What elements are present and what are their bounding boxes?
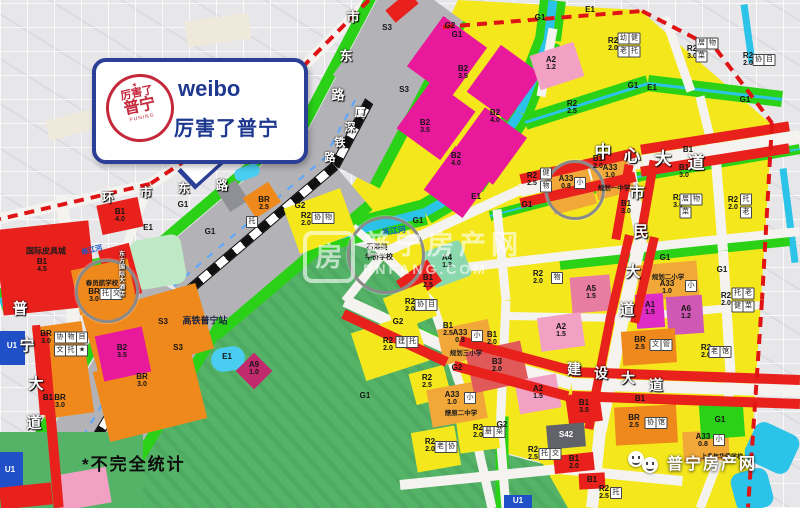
facility-icon-box-cluster: 协目 — [753, 54, 774, 66]
zone-label: B1 — [587, 476, 597, 484]
zone-label: A51.5 — [586, 285, 596, 301]
zone-label: G1 — [628, 82, 639, 90]
facility-icon: 目 — [764, 54, 776, 66]
facility-icon-box-cluster: 协物目文托★ — [54, 332, 86, 357]
facility-icon: 托 — [246, 216, 258, 228]
zone-label: E1 — [222, 353, 232, 361]
zone-label: S3 — [382, 24, 392, 32]
facility-icon: 老 — [740, 207, 752, 219]
zone-label: A331.0 — [445, 391, 460, 407]
facility-icon: 菜 — [696, 51, 708, 63]
zone-label: A91.0 — [249, 361, 259, 377]
zone-label: B1 — [43, 394, 53, 402]
text-label: 规划三小学 — [450, 347, 483, 357]
zone-label: G2 — [295, 202, 306, 210]
facility-icon-box-cluster: 协馆 — [645, 417, 666, 429]
zone-label: R22.5 — [567, 100, 577, 116]
facility-icon-box-cluster: 幼健老托 — [618, 33, 639, 58]
facility-icon: 小 — [464, 392, 476, 404]
text-label: 市 — [140, 184, 152, 201]
facility-icon: 交 — [550, 448, 562, 460]
facility-icon-box-cluster: 协目 — [415, 299, 436, 311]
zone-label: G1 — [413, 217, 424, 225]
facility-icon: 老 — [743, 288, 755, 300]
puning-stamp-icon: ★ 厉害了 普宁 PUNING — [100, 68, 181, 149]
zone-label: A11.5 — [645, 301, 655, 317]
text-label: 建 — [567, 359, 581, 379]
facility-icon: 健 — [629, 33, 641, 45]
text-label: 东方国际大酒店 — [117, 252, 127, 298]
facility-icon-box-cluster: 建托 — [396, 336, 417, 348]
zone-label: G1 — [717, 266, 728, 274]
zone-label: A41.3 — [442, 254, 452, 270]
facility-icon: 托 — [740, 194, 752, 206]
facility-icon-box-cluster: 小 — [464, 392, 474, 404]
facility-icon: 物 — [691, 194, 703, 206]
text-label: 春员航学校 — [86, 277, 119, 287]
facility-icon-box-cluster: 协物 — [312, 212, 333, 224]
zone-label: B32.0 — [492, 358, 502, 374]
text-label: 石港美 — [367, 242, 388, 252]
facility-icon-box-cluster: 居物菜 — [680, 194, 701, 219]
facility-icon: 托 — [407, 336, 419, 348]
zone-label: B14.0 — [115, 208, 125, 224]
zone-label: B23.5 — [117, 344, 127, 360]
text-label: 铁 — [335, 134, 346, 150]
zone-label: E1 — [585, 6, 595, 14]
facility-icon: 目 — [76, 332, 88, 344]
zone-label: G2 — [452, 364, 463, 372]
zone-label: U1 — [7, 342, 17, 350]
text-label: 道 — [649, 375, 663, 395]
zone-label: A21.5 — [556, 323, 566, 339]
zone-label: G1 — [360, 392, 371, 400]
road — [493, 209, 511, 301]
zone-label: R22.0 — [721, 292, 731, 308]
zone-label: S42 — [559, 431, 573, 439]
facility-icon: 管 — [661, 339, 673, 351]
text-label: 民 — [633, 221, 648, 242]
facility-icon: 目 — [426, 299, 438, 311]
text-label: 东 — [339, 46, 352, 65]
text-label: 规划一中学 — [598, 182, 631, 192]
text-label: 道 — [688, 149, 705, 174]
facility-icon-box-cluster: 物 — [551, 272, 561, 284]
text-label: 普 — [12, 298, 27, 319]
text-label: 路 — [216, 177, 228, 194]
zone-label: B23.5 — [458, 65, 468, 81]
text-label: 路 — [331, 85, 344, 104]
zone-label: G2 — [393, 318, 404, 326]
zone-label: E1 — [471, 193, 481, 201]
zone-label: A21.5 — [533, 385, 543, 401]
zone-label: R22.5 — [422, 374, 432, 390]
footnote: *不完全统计 — [82, 450, 186, 475]
facility-icon-box-cluster: 册菜 — [483, 426, 504, 438]
facility-icon-box-cluster: 托 — [246, 216, 256, 228]
zone-label: S3 — [158, 318, 168, 326]
facility-icon-box-cluster: 托老 — [740, 194, 750, 219]
facility-icon: 菜 — [680, 207, 692, 219]
zone-label: A61.2 — [681, 305, 691, 321]
zone-ub — [185, 13, 252, 48]
facility-icon-box-cluster: 文管 — [650, 339, 671, 351]
zone-label: G1 — [535, 14, 546, 22]
zone-label: A330.8 — [696, 433, 711, 449]
zone-label: S3 — [173, 344, 183, 352]
facility-icon: 小 — [471, 330, 483, 342]
facility-icon: 托 — [610, 487, 622, 499]
facility-icon: 物 — [551, 272, 563, 284]
facility-icon: 菜 — [743, 301, 755, 313]
facility-icon: 物 — [707, 38, 719, 50]
text-label: 大 — [625, 261, 640, 282]
facility-icon-box-cluster: 托交 — [539, 448, 560, 460]
bubble-title: 厉害了普宁 — [174, 112, 279, 141]
zone-label: G1 — [178, 201, 189, 209]
text-label: 华侨学校 — [365, 252, 393, 262]
zone-label: A21.2 — [546, 56, 556, 72]
zone-label: A330.8 — [453, 329, 468, 345]
text-label: 道 — [619, 299, 634, 320]
facility-icon: 托 — [629, 46, 641, 58]
text-label: 大 — [655, 145, 672, 170]
zone-label: B12.5 — [423, 274, 433, 290]
text-label: 宁 — [19, 335, 34, 356]
zone-label: U1 — [513, 497, 523, 505]
facility-icon: ★ — [76, 345, 88, 357]
facility-icon-box-cluster: 托 — [610, 487, 620, 499]
text-label: 环 — [102, 189, 114, 206]
zone-label: BR2.5 — [634, 336, 646, 352]
facility-icon: 物 — [323, 212, 335, 224]
zone-b1 — [0, 482, 53, 508]
facility-icon-box-cluster: 老协 — [435, 441, 456, 453]
facility-icon: 物 — [540, 181, 552, 193]
site-logo-text: 普宁房产网 — [667, 450, 757, 474]
zone-label: R22.0 — [533, 270, 543, 286]
zone-label: B24.0 — [490, 109, 500, 125]
zone-label: U1 — [5, 466, 15, 474]
text-label: 高铁普宁站 — [182, 314, 227, 327]
text-label: 厦 — [355, 104, 366, 120]
text-label: 道 — [26, 412, 41, 433]
zone-label: R22.5 — [528, 446, 538, 462]
zone-label: G1 — [660, 254, 671, 262]
zone-label: B12.0 — [487, 331, 497, 347]
zone-label: B12.5 — [443, 322, 453, 338]
zone-label: G1 — [452, 31, 463, 39]
facility-icon-box-cluster: 小 — [713, 434, 723, 446]
zone-label: S3 — [399, 86, 409, 94]
text-label: 心 — [624, 142, 641, 167]
facility-icon-box-cluster: 小 — [685, 280, 695, 292]
text-label: 中 — [595, 138, 612, 163]
zone-label: BR3.0 — [40, 330, 52, 346]
facility-icon-box-cluster: 健物 — [540, 168, 550, 193]
text-label: 深 — [345, 119, 356, 135]
river-water — [780, 168, 799, 263]
speech-bubble: ★ 厉害了 普宁 PUNING weibo 厉害了普宁 — [92, 58, 308, 164]
facility-icon: 协 — [446, 441, 458, 453]
zone-ub — [45, 109, 95, 140]
facility-icon-box-cluster: 老馆 — [709, 346, 730, 358]
zone-label: G1 — [740, 96, 751, 104]
zone-label: A330.8 — [559, 175, 574, 191]
zone-label: R22.5 — [527, 172, 537, 188]
zone-label: R22.5 — [599, 485, 609, 501]
weibo-label: weibo — [178, 76, 240, 102]
text-label: 市 — [346, 7, 359, 26]
facility-icon: 馆 — [720, 346, 732, 358]
zone-label: B23.5 — [420, 119, 430, 135]
text-label: 市 — [629, 182, 644, 203]
zone-label: G1 — [205, 228, 216, 236]
zone-label: R22.0 — [383, 337, 393, 353]
text-label: 大 — [28, 373, 43, 394]
text-label: 大 — [621, 368, 635, 388]
zone-label: BR2.5 — [258, 196, 270, 212]
zone-label: B13.5 — [579, 399, 589, 415]
zone-label: B14.5 — [37, 258, 47, 274]
text-label: 国际皮具城 — [26, 246, 66, 257]
zone-label: BR3.0 — [136, 373, 148, 389]
facility-icon-box-cluster: 托老健菜 — [732, 288, 753, 313]
facility-icon: 馆 — [656, 417, 668, 429]
zone-label: R22.0 — [301, 212, 311, 228]
facility-icon-box-cluster: 小 — [471, 330, 481, 342]
facility-icon: 小 — [574, 177, 586, 189]
zone-label: E1 — [647, 84, 657, 92]
facility-icon-box-cluster: 小 — [574, 177, 584, 189]
zone-label: B24.0 — [451, 152, 461, 168]
text-label: 燎原二中学 — [445, 407, 478, 417]
mascot-faces-icon — [628, 451, 662, 473]
zone-label: G1 — [522, 201, 533, 209]
zone-label: E1 — [143, 224, 153, 232]
facility-icon: 小 — [713, 434, 725, 446]
zone-label: G1 — [715, 416, 726, 424]
facility-icon-box-cluster: 居物菜 — [696, 38, 717, 63]
mascot-face-icon — [642, 457, 658, 473]
text-label: 路 — [325, 149, 336, 165]
map-canvas: S3S3S3S3G2G2G2G2G2G1G1G1G1G1G1G1G1G1G1G1… — [0, 0, 800, 508]
zone-label: BR3.0 — [54, 394, 66, 410]
facility-icon: 菜 — [494, 426, 506, 438]
site-logo: 普宁房产网 — [628, 450, 757, 474]
facility-icon: 健 — [540, 168, 552, 180]
text-label: 规划二小学 — [652, 271, 685, 281]
text-label: 设 — [594, 363, 608, 383]
zone-label: B1 — [635, 395, 645, 403]
zone-label: A331.0 — [603, 164, 618, 180]
zone-label: B12.0 — [569, 455, 579, 471]
facility-icon: 小 — [685, 280, 697, 292]
zone-label: A331.0 — [660, 280, 675, 296]
zone-label: BR2.5 — [628, 414, 640, 430]
zone-label: R22.0 — [728, 196, 738, 212]
zone-label: BR3.0 — [88, 288, 100, 304]
